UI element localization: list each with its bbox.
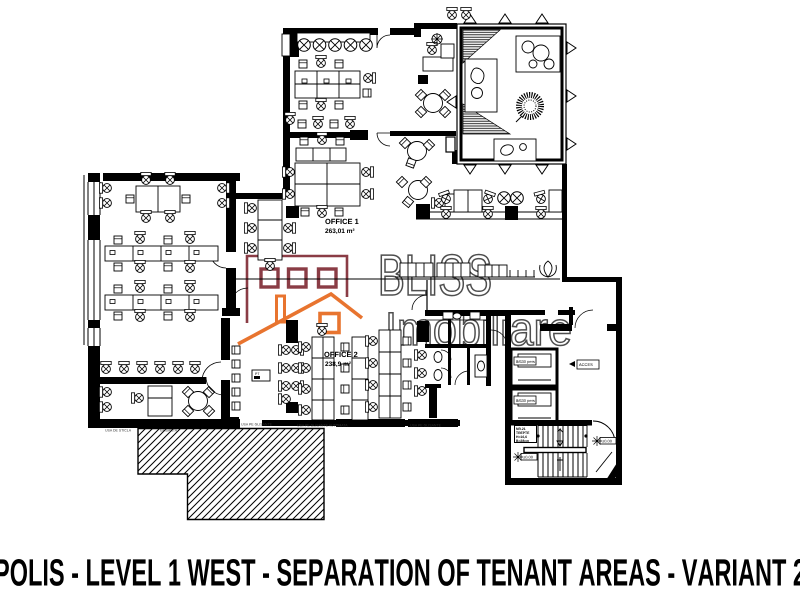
svg-text:GLISANTA: GLISANTA bbox=[160, 429, 178, 433]
svg-text:±0.00: ±0.00 bbox=[523, 455, 534, 460]
svg-text:USA PE GLISANTE: USA PE GLISANTE bbox=[241, 423, 273, 427]
svg-text:B=28cm: B=28cm bbox=[516, 439, 529, 443]
svg-text:8/630 pers: 8/630 pers bbox=[516, 359, 535, 364]
svg-text:USA PE GLISANTE: USA PE GLISANTE bbox=[410, 424, 442, 428]
svg-text:8/630 pers: 8/630 pers bbox=[516, 398, 535, 403]
svg-text:ACCES: ACCES bbox=[579, 362, 593, 367]
svg-text:USA PE GLISANTE AUTOMATA: USA PE GLISANTE AUTOMATA bbox=[297, 424, 348, 428]
svg-text:USA DE STICLA: USA DE STICLA bbox=[105, 429, 132, 433]
svg-text:±0.00: ±0.00 bbox=[602, 439, 613, 444]
